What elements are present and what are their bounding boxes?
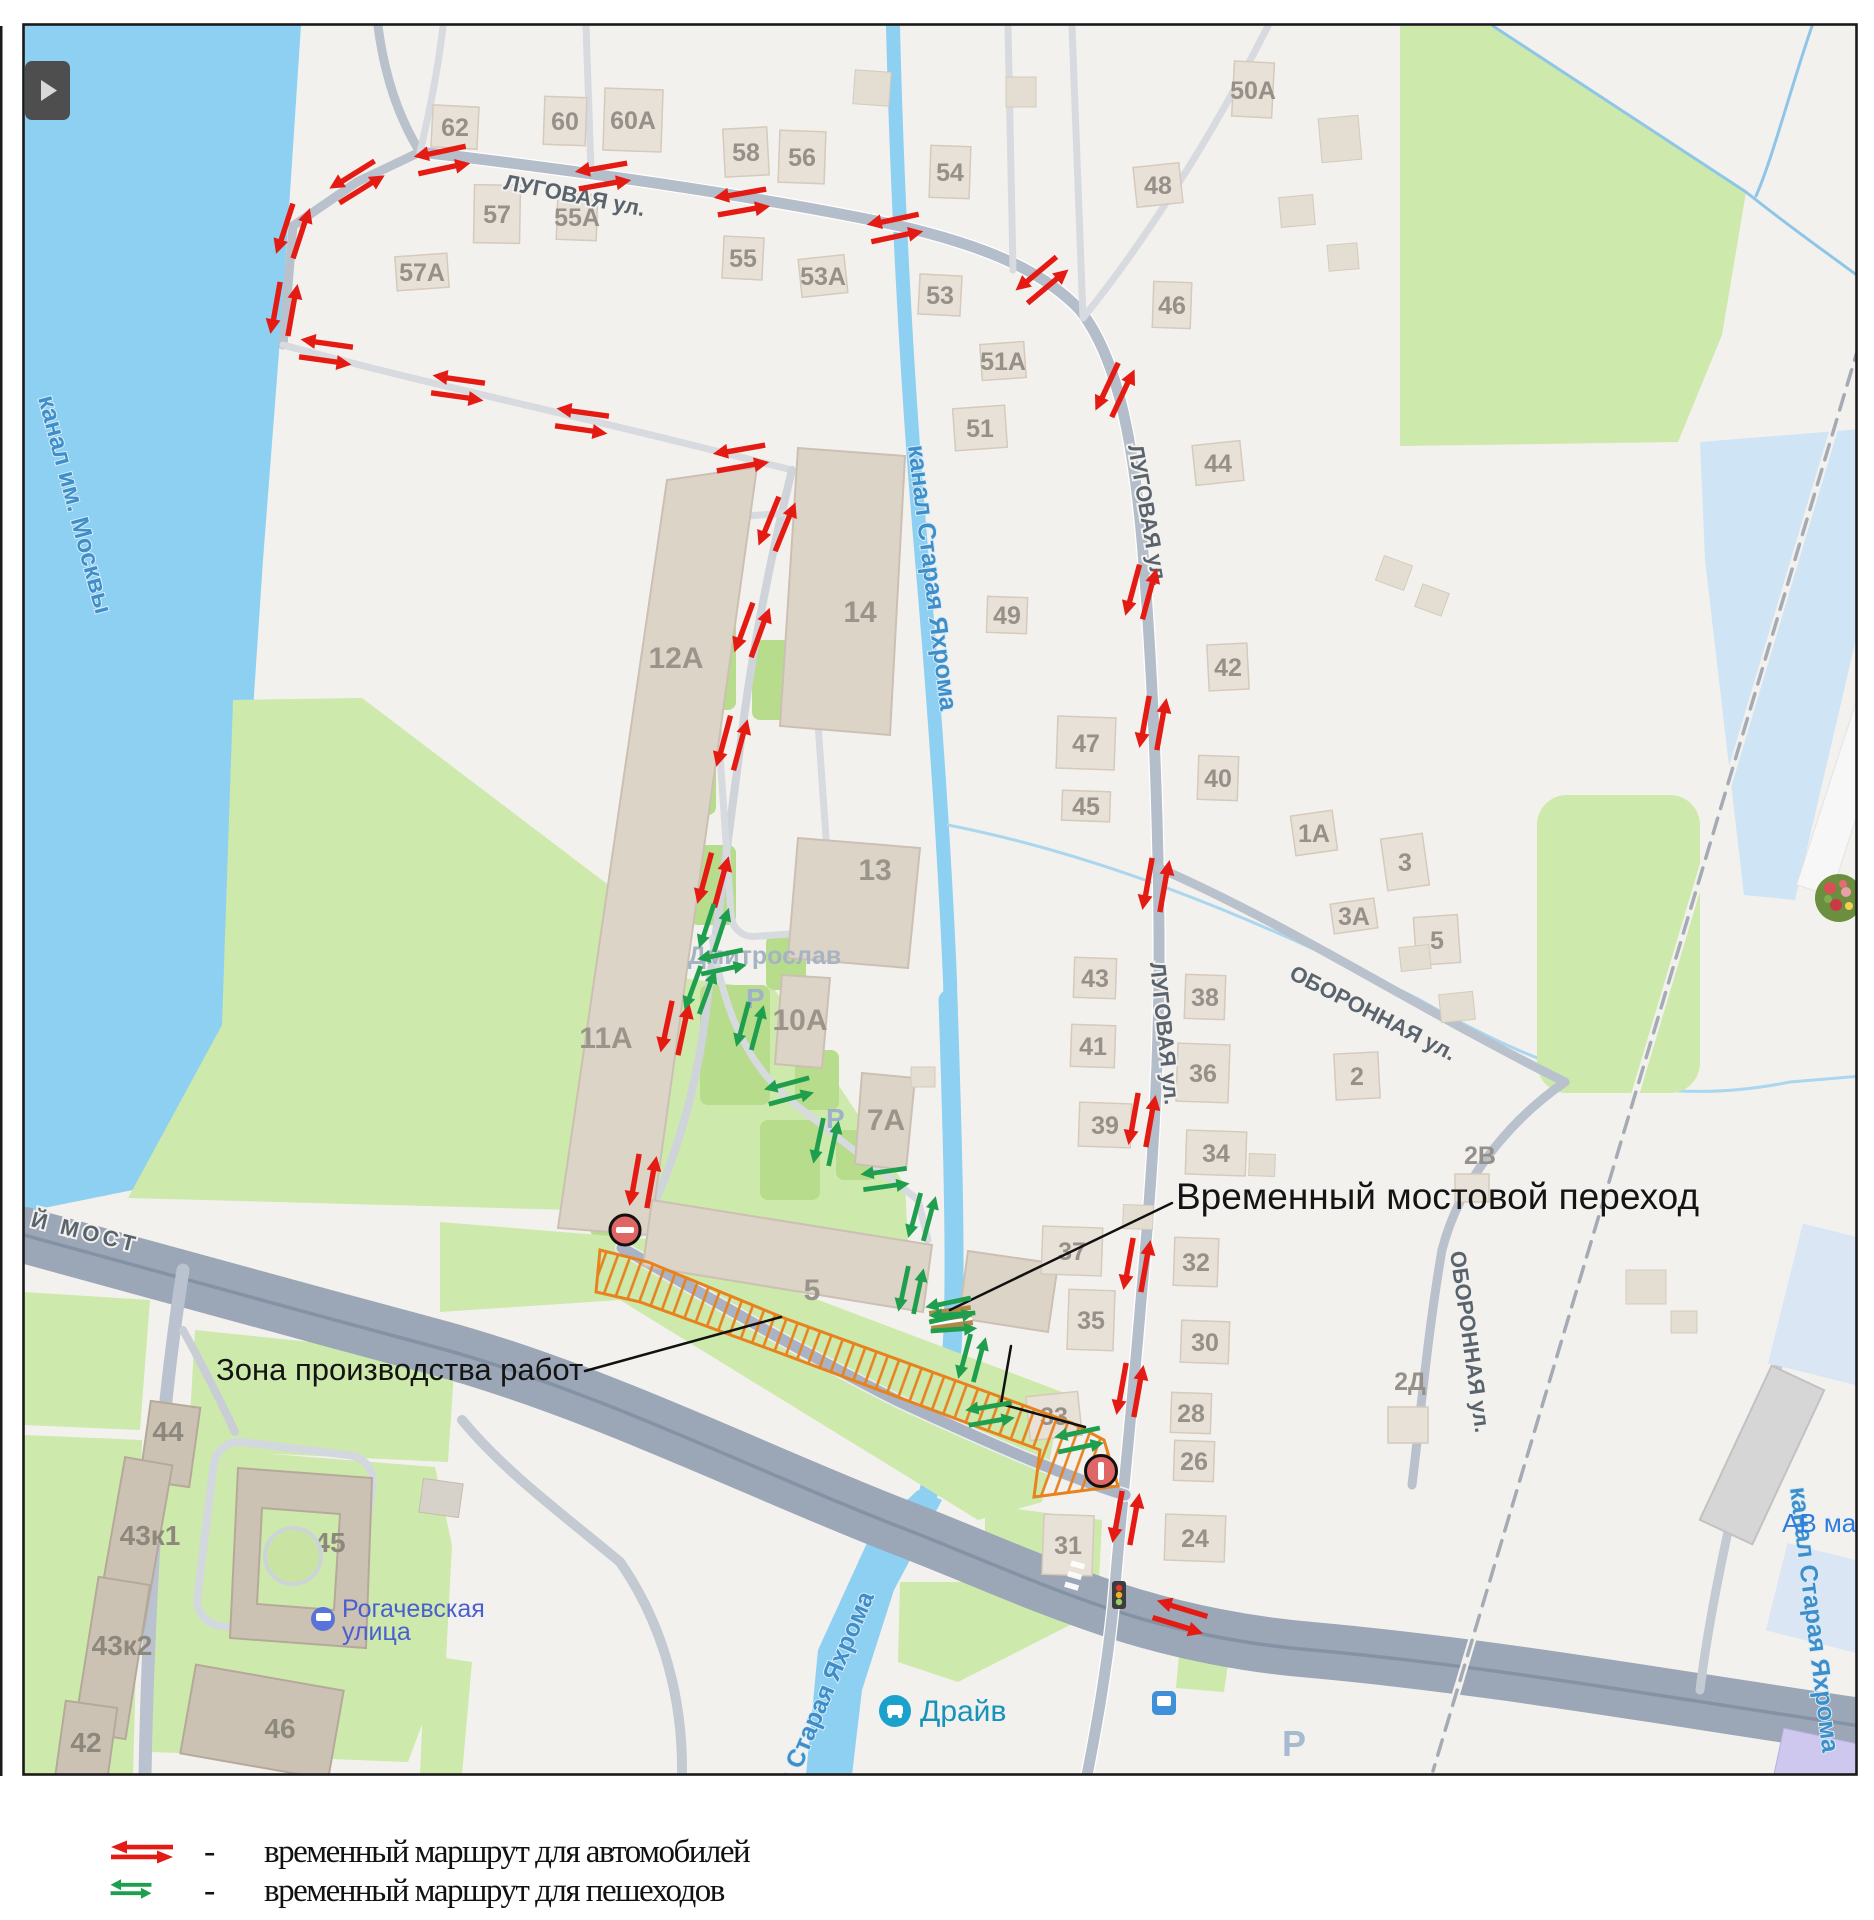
svg-text:7А: 7А <box>867 1104 905 1137</box>
svg-text:12А: 12А <box>648 642 703 675</box>
svg-text:44: 44 <box>152 1416 184 1447</box>
svg-text:31: 31 <box>1054 1532 1082 1560</box>
svg-text:48: 48 <box>1144 172 1172 200</box>
svg-text:39: 39 <box>1091 1112 1119 1140</box>
svg-text:41: 41 <box>1079 1033 1107 1061</box>
svg-text:50A: 50A <box>1230 77 1276 105</box>
svg-text:62: 62 <box>441 114 469 142</box>
svg-text:5: 5 <box>804 1274 821 1307</box>
svg-text:30: 30 <box>1191 1329 1219 1357</box>
svg-text:Р: Р <box>1282 1723 1306 1764</box>
svg-text:Зона производства работ: Зона производства работ <box>216 1352 583 1387</box>
svg-text:57: 57 <box>483 201 511 229</box>
svg-text:11А: 11А <box>579 1022 632 1055</box>
svg-text:46: 46 <box>264 1713 295 1744</box>
svg-text:36: 36 <box>1189 1060 1217 1088</box>
svg-text:3A: 3A <box>1338 903 1370 931</box>
svg-text:улица: улица <box>342 1618 411 1646</box>
svg-text:44: 44 <box>1204 450 1232 478</box>
svg-text:47: 47 <box>1072 730 1100 758</box>
svg-text:2Д: 2Д <box>1394 1368 1426 1396</box>
svg-text:51A: 51A <box>980 348 1026 376</box>
svg-text:13: 13 <box>858 854 891 887</box>
svg-text:2: 2 <box>1350 1063 1364 1091</box>
svg-text:3: 3 <box>1398 849 1412 877</box>
svg-text:40: 40 <box>1204 765 1232 793</box>
svg-text:14: 14 <box>843 596 877 629</box>
svg-text:53: 53 <box>926 282 954 310</box>
svg-text:10А: 10А <box>772 1004 827 1037</box>
svg-text:42: 42 <box>70 1727 101 1758</box>
svg-text:54: 54 <box>936 159 964 187</box>
svg-text:26: 26 <box>1180 1448 1208 1476</box>
svg-text:43к2: 43к2 <box>92 1630 153 1661</box>
svg-text:5: 5 <box>1430 927 1444 955</box>
svg-text:временный маршрут для пешеходо: временный маршрут для пешеходов <box>264 1873 725 1909</box>
svg-text:24: 24 <box>1181 1525 1209 1553</box>
svg-text:2В: 2В <box>1464 1142 1496 1170</box>
svg-text:51: 51 <box>966 415 994 443</box>
svg-text:60: 60 <box>551 108 579 136</box>
svg-text:53A: 53A <box>800 263 846 291</box>
svg-text:56: 56 <box>788 144 816 172</box>
svg-text:35: 35 <box>1077 1307 1105 1335</box>
svg-text:Временный мостовой переход: Временный мостовой переход <box>1176 1176 1699 1217</box>
svg-text:32: 32 <box>1182 1249 1210 1277</box>
svg-text:34: 34 <box>1202 1140 1230 1168</box>
svg-text:60A: 60A <box>610 107 656 135</box>
svg-text:57A: 57A <box>399 259 445 287</box>
svg-text:-: - <box>204 1872 215 1909</box>
svg-text:46: 46 <box>1158 292 1186 320</box>
svg-text:-: - <box>204 1833 215 1870</box>
svg-text:28: 28 <box>1177 1400 1205 1428</box>
svg-text:58: 58 <box>732 139 760 167</box>
svg-text:временный маршрут для автомоби: временный маршрут для автомобилей <box>264 1834 750 1870</box>
svg-text:1A: 1A <box>1298 820 1330 848</box>
svg-text:Драйв: Драйв <box>920 1695 1006 1728</box>
svg-text:55: 55 <box>729 245 757 273</box>
svg-text:43к1: 43к1 <box>120 1520 181 1551</box>
svg-text:45: 45 <box>1072 793 1100 821</box>
svg-text:38: 38 <box>1191 984 1219 1012</box>
svg-text:49: 49 <box>993 602 1021 630</box>
svg-text:43: 43 <box>1081 965 1109 993</box>
svg-text:42: 42 <box>1214 654 1242 682</box>
